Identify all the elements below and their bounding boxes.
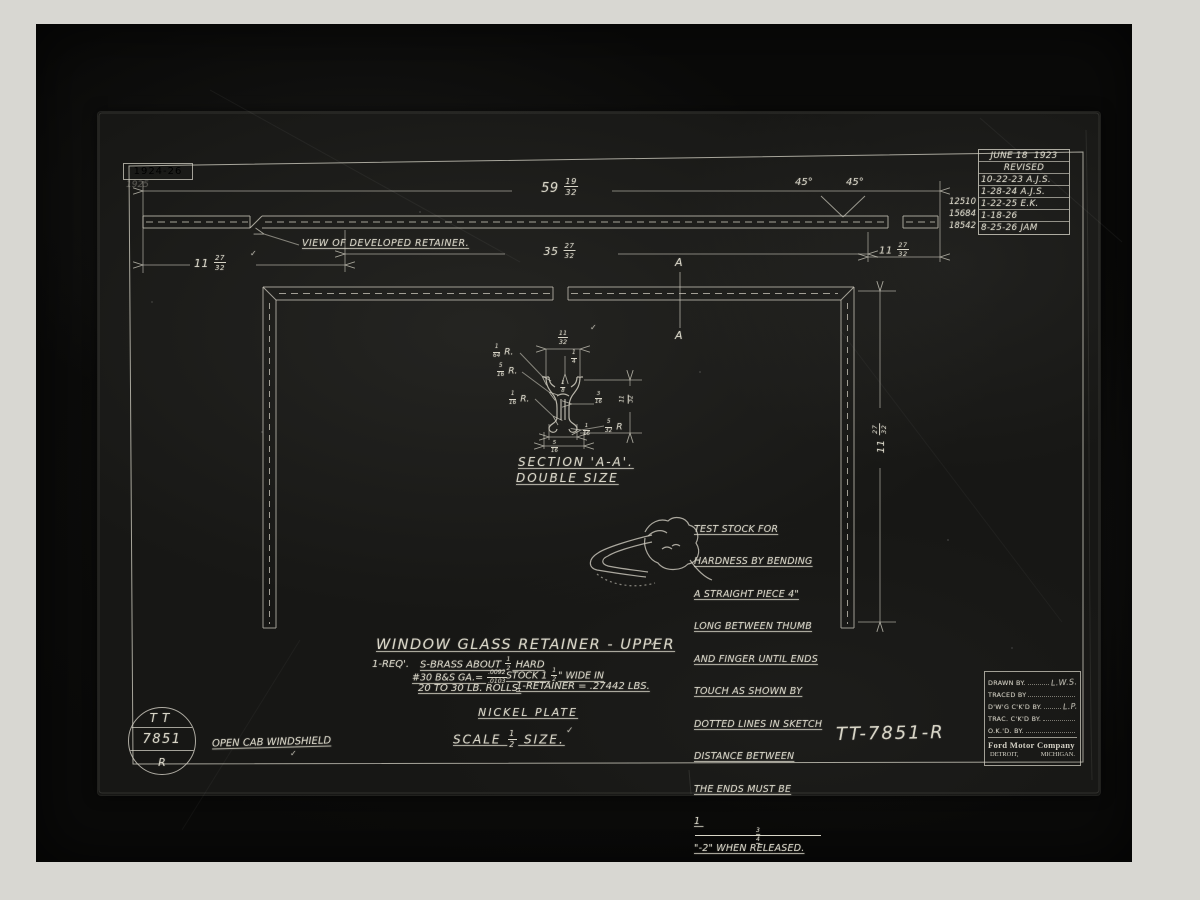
section-letter-top: A (675, 257, 683, 269)
revision-table: JUNE 18 1923 REVISED 10-22-23 A.J.S. 1-2… (978, 149, 1070, 235)
test-note: TEST STOCK FOR HARDNESS BY BENDING A STR… (694, 504, 822, 877)
company-state: MICHIGAN. (1041, 751, 1075, 758)
test-note-line: LONG BETWEEN THUMB (694, 622, 822, 632)
title-block-row: DRAWN BY. L.W.S. (988, 675, 1077, 687)
revision-entry: 8-25-26 JAM (979, 222, 1069, 234)
dotted-rule (1026, 732, 1075, 733)
revision-entry: 1-18-26 (979, 210, 1069, 222)
title-block-label: TRAC. C'K'D BY. (988, 715, 1041, 723)
dim-right-length: 11 2732 (879, 242, 910, 258)
title-scale: SCALE 12 SIZE. (453, 730, 565, 748)
test-note-line: DOTTED LINES IN SKETCH (694, 720, 822, 730)
section-title: SECTION 'A-A'. (518, 456, 634, 469)
dim-left-length: 11 2732 (194, 254, 227, 271)
drawing-number-stamp: TT 7851 R (128, 707, 196, 775)
dim-section-radius-2: 516 R. (496, 364, 517, 379)
check-mark: ✓ (650, 640, 658, 650)
title-block-label: TRACED BY (988, 691, 1026, 699)
title-block-row: O.K.'D. BY. (988, 723, 1077, 735)
test-note-line: 1 34"-2" WHEN RELEASED. (694, 817, 822, 854)
test-note-line: AND FINGER UNTIL ENDS (694, 655, 822, 665)
section-letter-bottom: A (675, 330, 683, 342)
signature: L.P. (1062, 702, 1077, 712)
drawing-title: WINDOW GLASS RETAINER - UPPER (376, 638, 675, 654)
dim-section-radius-3: 116 R. (508, 392, 529, 407)
check-mark: ✓ (566, 727, 574, 737)
dim-section-height: 1132 (621, 393, 636, 404)
test-note-line: TEST STOCK FOR (694, 525, 822, 535)
revision-revised-label: REVISED (979, 162, 1069, 174)
dotted-rule (1028, 696, 1075, 697)
revision-entry: 1-22-25 E.K. (979, 198, 1069, 210)
dim-section-top-width: 1132 (557, 330, 569, 346)
check-mark: ✓ (590, 324, 597, 333)
revision-date: JUNE 18 1923 (979, 150, 1069, 162)
dim-section-lip-depth: 14 (570, 351, 578, 366)
test-note-line: HARDNESS BY BENDING (694, 557, 822, 567)
title-block-row: TRACED BY (988, 687, 1077, 699)
revision-change-number: 15684 (936, 210, 976, 219)
test-note-line: THE ENDS MUST BE (694, 785, 822, 795)
dim-center-length: 35 2732 (544, 242, 577, 259)
drawing-number: TT-7851-R (836, 723, 945, 745)
title-block-label: D'W'G C'K'D BY. (988, 703, 1042, 711)
developed-view-label: VIEW OF DEVELOPED RETAINER. (302, 239, 469, 249)
year-box-faint-text: 1925 (126, 181, 149, 191)
test-note-line: TOUCH AS SHOWN BY (694, 687, 822, 697)
dim-angle-left: 45° (795, 177, 813, 188)
title-rolls: 20 TO 30 LB. ROLLS. (418, 683, 521, 694)
company-city: DETROIT, (990, 751, 1018, 758)
title-block-row: TRAC. C'K'D BY. (988, 711, 1077, 723)
title-block-label: O.K.'D. BY. (988, 727, 1024, 735)
company-name: Ford Motor Company (988, 737, 1077, 750)
dim-section-radius-1: 164 R. (492, 345, 513, 360)
signature: L.W.S. (1051, 677, 1078, 687)
section-subtitle: DOUBLE SIZE (516, 472, 619, 485)
dim-section-radius-4: 532 R (604, 420, 622, 435)
revision-change-number: 12510 (936, 198, 976, 207)
year-box: 1924-26 (123, 163, 193, 180)
dotted-rule (1043, 720, 1075, 721)
company-location: DETROIT, MICHIGAN. (988, 750, 1077, 758)
ford-title-block: DRAWN BY. L.W.S. TRACED BY D'W'G C'K'D B… (984, 671, 1081, 766)
revision-entry: 1-28-24 A.J.S. (979, 186, 1069, 198)
dim-section-bottom-width: 516 (550, 441, 559, 455)
dim-frame-height: 11 2732 (872, 423, 888, 454)
revision-change-number: 18542 (936, 222, 976, 231)
test-note-line: DISTANCE BETWEEN (694, 752, 822, 762)
stamp-number: 7851 (129, 728, 195, 751)
dim-overall-length: 59 1932 (541, 177, 579, 197)
title-weight: 1-RETAINER = .27442 LBS. (516, 681, 650, 692)
dim-section-stem-width: 116 (582, 424, 591, 438)
title-block-label: DRAWN BY. (988, 679, 1026, 687)
title-req: 1-REQ'. (372, 659, 409, 670)
check-mark: ✓ (250, 250, 257, 259)
test-note-line: A STRAIGHT PIECE 4" (694, 590, 822, 600)
title-block-row: D'W'G C'K'D BY. L.P. (988, 699, 1077, 711)
dim-section-inner-offset: 316 (594, 392, 603, 406)
photo-black-field (36, 24, 1132, 862)
blueprint-photograph: 1924-26 1925 JUNE 18 1923 REVISED 10-22-… (0, 0, 1200, 900)
dotted-rule (1028, 684, 1049, 685)
title-finish: NICKEL PLATE (478, 707, 578, 719)
dotted-rule (1044, 708, 1061, 709)
dim-angle-right: 45° (846, 177, 864, 188)
revision-entry: 10-22-23 A.J.S. (979, 174, 1069, 186)
check-mark: ✓ (290, 750, 297, 759)
dim-section-inner-width: 18 (559, 381, 566, 395)
